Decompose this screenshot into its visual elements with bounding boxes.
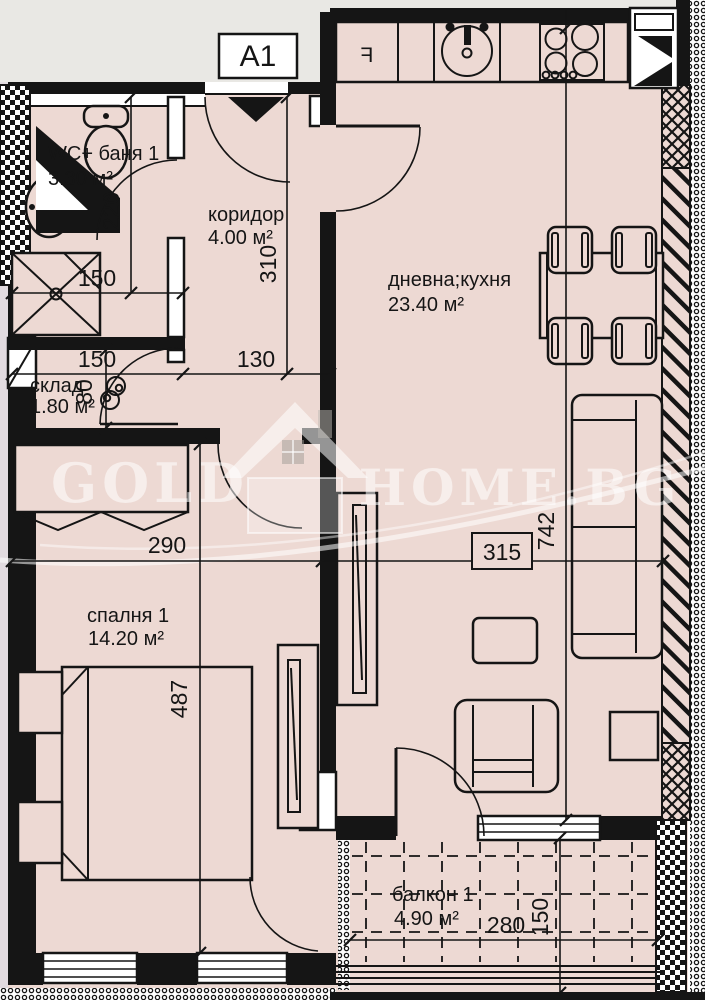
- room-name-storage: склад: [30, 375, 84, 397]
- living-door-opening: [320, 125, 336, 212]
- wall-balcony-right: [656, 820, 686, 992]
- balcony-left-strip: [338, 840, 350, 990]
- dim-wc-width: 220: [98, 192, 124, 230]
- wall-wc-corridor-b: [168, 238, 184, 337]
- bedroom-window-2: [197, 953, 287, 983]
- floor-plan-page: F: [0, 0, 705, 1000]
- wall-storage-stub: [168, 350, 184, 362]
- watermark-word-right: HOME.BG: [359, 458, 682, 517]
- bed-icon: [62, 667, 252, 880]
- chair-icon: [548, 318, 592, 364]
- wall-bedroom-bottom-a: [8, 953, 43, 985]
- dim-bedroom-width: 290: [148, 532, 186, 558]
- wall-balcony-left-jamb: [336, 816, 396, 840]
- side-table-icon: [610, 712, 658, 760]
- room-area-living: 23.40 м²: [388, 294, 464, 316]
- sofa-icon: [572, 395, 662, 658]
- dim-bedroom-height: 487: [166, 680, 192, 718]
- fridge-icon: F: [361, 44, 374, 67]
- room-label-corridor: коридор 4.00 м²: [208, 204, 284, 249]
- dim-balcony-width: 280: [487, 912, 525, 938]
- bedroom-window-1: [43, 953, 137, 983]
- bottom-insulation-left: [0, 988, 336, 1000]
- armchair-icon: [455, 700, 558, 792]
- room-name-bedroom: спалня 1: [87, 605, 169, 627]
- dim-shower-width: 150: [78, 265, 116, 291]
- wall-right-column-a: [662, 85, 690, 168]
- dim-corridor-width: 130: [237, 346, 275, 372]
- room-area-storage: 1.80 м²: [30, 396, 95, 418]
- dim-balcony-height: 150: [527, 898, 553, 936]
- wall-bedroom-top: [8, 428, 220, 444]
- unit-label-text: A1: [240, 40, 277, 73]
- floor-plan-drawing: F: [0, 0, 705, 1000]
- room-name-living: дневна;кухня: [388, 269, 511, 291]
- wall-bedroom-bottom-b: [137, 953, 197, 985]
- room-name-corridor: коридор: [208, 204, 284, 226]
- nightstand-icon: [18, 672, 62, 733]
- dim-storage-width: 150: [78, 346, 116, 372]
- living-window: [478, 816, 600, 840]
- room-label-bedroom: спалня 1 14.20 м²: [87, 605, 169, 650]
- wall-wc-corridor-a: [168, 97, 184, 158]
- unit-label-box: A1: [219, 34, 297, 78]
- room-area-bedroom: 14.20 м²: [88, 628, 164, 650]
- chair-icon: [612, 227, 656, 273]
- coffee-table-icon: [473, 618, 537, 663]
- watermark-word-left: GOLD: [51, 451, 249, 515]
- room-area-corridor: 4.00 м²: [208, 227, 273, 249]
- wall-right-column-b: [662, 743, 690, 820]
- wall-top-wc: [8, 82, 205, 94]
- bottom-slab: [330, 992, 705, 1000]
- right-insulation-strip: [690, 0, 705, 1000]
- wall-bedroom-bottom-c: [287, 953, 336, 985]
- nightstand-icon: [18, 802, 62, 863]
- dim-living-height: 742: [533, 512, 559, 550]
- room-name-wc: WC+ баня 1: [48, 143, 159, 165]
- dim-living-width: 315: [483, 539, 521, 565]
- room-area-wc: 3.30 м²: [48, 168, 113, 190]
- wall-right-hatched: [662, 168, 690, 743]
- corner-cabinet-icon: [630, 8, 678, 88]
- chair-icon: [548, 227, 592, 273]
- dim-corridor-height: 310: [255, 245, 281, 283]
- tv-cabinet-bedroom: [278, 645, 318, 828]
- chair-icon: [612, 318, 656, 364]
- room-name-balcony: балкон 1: [392, 884, 474, 906]
- fridge-label: F: [361, 44, 374, 67]
- room-area-balcony: 4.90 м²: [394, 908, 459, 930]
